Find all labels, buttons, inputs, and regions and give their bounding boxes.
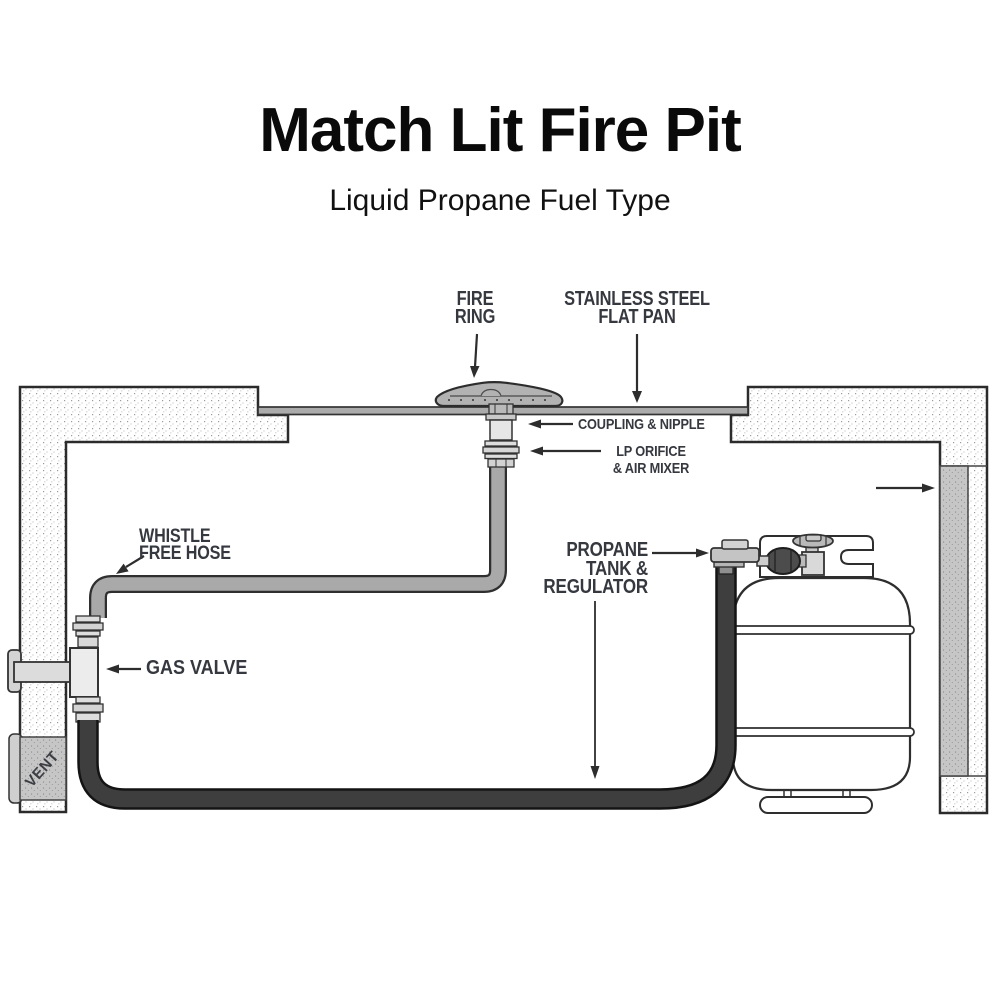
arrow-fire-ring (470, 334, 480, 378)
arrow-flat-pan (632, 334, 642, 403)
tank-seam-lower (729, 728, 914, 736)
fire-pit-diagram: Match Lit Fire Pit Liquid Propane Fuel T… (0, 0, 1000, 1000)
coupling-and-nipple (486, 404, 516, 440)
label-whistle-hose-line2: FREE HOSE (139, 545, 231, 562)
lp-orifice-air-mixer (483, 441, 519, 467)
tank-seam-upper (729, 626, 914, 634)
fire-ring (436, 382, 563, 406)
label-lp-orifice-line1: LP ORIFICE (603, 443, 698, 460)
arrow-regulator-hose (591, 601, 600, 779)
arrow-right-vent (876, 484, 935, 493)
page-title: Match Lit Fire Pit (0, 100, 1000, 162)
page-subtitle: Liquid Propane Fuel Type (0, 186, 1000, 216)
label-flat-pan: STAINLESS STEEL FLAT PAN (547, 291, 727, 326)
arrow-gas-valve (106, 665, 141, 674)
label-flat-pan-line2: FLAT PAN (547, 309, 727, 327)
label-fire-ring: FIRE RING (418, 291, 533, 326)
label-fire-ring-line2: RING (418, 309, 533, 327)
label-lp-orifice: LP ORIFICE & AIR MIXER (603, 443, 698, 477)
propane-tank (729, 535, 914, 814)
arrow-coupling-nipple (528, 420, 573, 429)
arrow-propane-tank (652, 549, 709, 558)
label-gas-valve: GAS VALVE (146, 660, 247, 678)
label-lp-orifice-line2: & AIR MIXER (603, 460, 698, 477)
label-propane-tank-line3: REGULATOR (505, 578, 648, 597)
lp-supply-hose (88, 566, 726, 799)
label-whistle-hose: WHISTLE FREE HOSE (139, 528, 231, 562)
label-coupling-nipple: COUPLING & NIPPLE (578, 416, 705, 433)
tank-body (733, 578, 910, 790)
tank-foot (760, 790, 872, 813)
label-propane-tank-line1: PROPANE (505, 541, 648, 560)
arrow-lp-orifice (530, 447, 601, 456)
label-propane-tank: PROPANE TANK & REGULATOR (505, 541, 648, 597)
